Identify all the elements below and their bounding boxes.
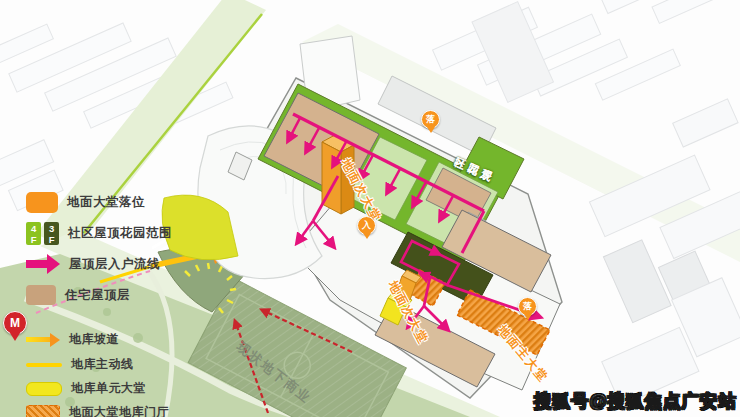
legend-label: 地库主动线 bbox=[71, 356, 134, 373]
legend-item-ground-lobby-location: 地面大堂落位 bbox=[26, 192, 172, 213]
legend: 地面大堂落位 4F 3F 社区屋顶花园范围 屋顶层入户流线 住宅屋顶层 地库坡道… bbox=[26, 192, 172, 417]
dropoff-pin: 落 bbox=[518, 297, 537, 316]
entry-pin: 入 bbox=[357, 216, 376, 235]
legend-item-residential-roof: 住宅屋顶层 bbox=[26, 285, 172, 305]
floor-tag-3f: 3F bbox=[44, 222, 59, 245]
metro-station-pin: M bbox=[3, 311, 27, 335]
legend-item-basement-unit-lobby: 地库单元大堂 bbox=[26, 380, 172, 397]
watermark: 搜狐号@搜狐焦点广安站 bbox=[534, 389, 737, 413]
orange-swatch bbox=[26, 192, 58, 213]
legend-item-basement-ramp: 地库坡道 bbox=[26, 331, 172, 348]
yellow-swatch bbox=[26, 382, 62, 396]
legend-label: 地库单元大堂 bbox=[71, 380, 146, 397]
legend-item-ground-lobby-basement-foyer: 地面大堂地库门厅 bbox=[26, 404, 172, 417]
orange-hatched-swatch bbox=[26, 405, 60, 417]
site-plan-canvas: 地面大堂落位 4F 3F 社区屋顶花园范围 屋顶层入户流线 住宅屋顶层 地库坡道… bbox=[0, 0, 740, 417]
yellow-arrow-swatch bbox=[26, 333, 60, 347]
tan-swatch bbox=[26, 285, 56, 305]
legend-label: 地面大堂落位 bbox=[67, 194, 145, 211]
floor-tag-4f: 4F bbox=[26, 222, 41, 245]
legend-label: 地面大堂地库门厅 bbox=[69, 404, 169, 417]
floor-tag-swatches: 4F 3F bbox=[26, 222, 59, 245]
legend-label: 住宅屋顶层 bbox=[65, 287, 130, 304]
magenta-arrow-swatch bbox=[26, 254, 60, 274]
yellow-line-swatch bbox=[26, 363, 62, 367]
legend-label: 屋顶层入户流线 bbox=[69, 256, 160, 273]
legend-item-basement-main-line: 地库主动线 bbox=[26, 356, 172, 373]
legend-item-community-roof-garden-range: 4F 3F 社区屋顶花园范围 bbox=[26, 222, 172, 245]
legend-label: 地库坡道 bbox=[69, 331, 119, 348]
legend-item-roof-entry-flow: 屋顶层入户流线 bbox=[26, 254, 172, 274]
legend-label: 社区屋顶花园范围 bbox=[68, 225, 172, 242]
dropoff-pin: 落 bbox=[421, 110, 440, 129]
